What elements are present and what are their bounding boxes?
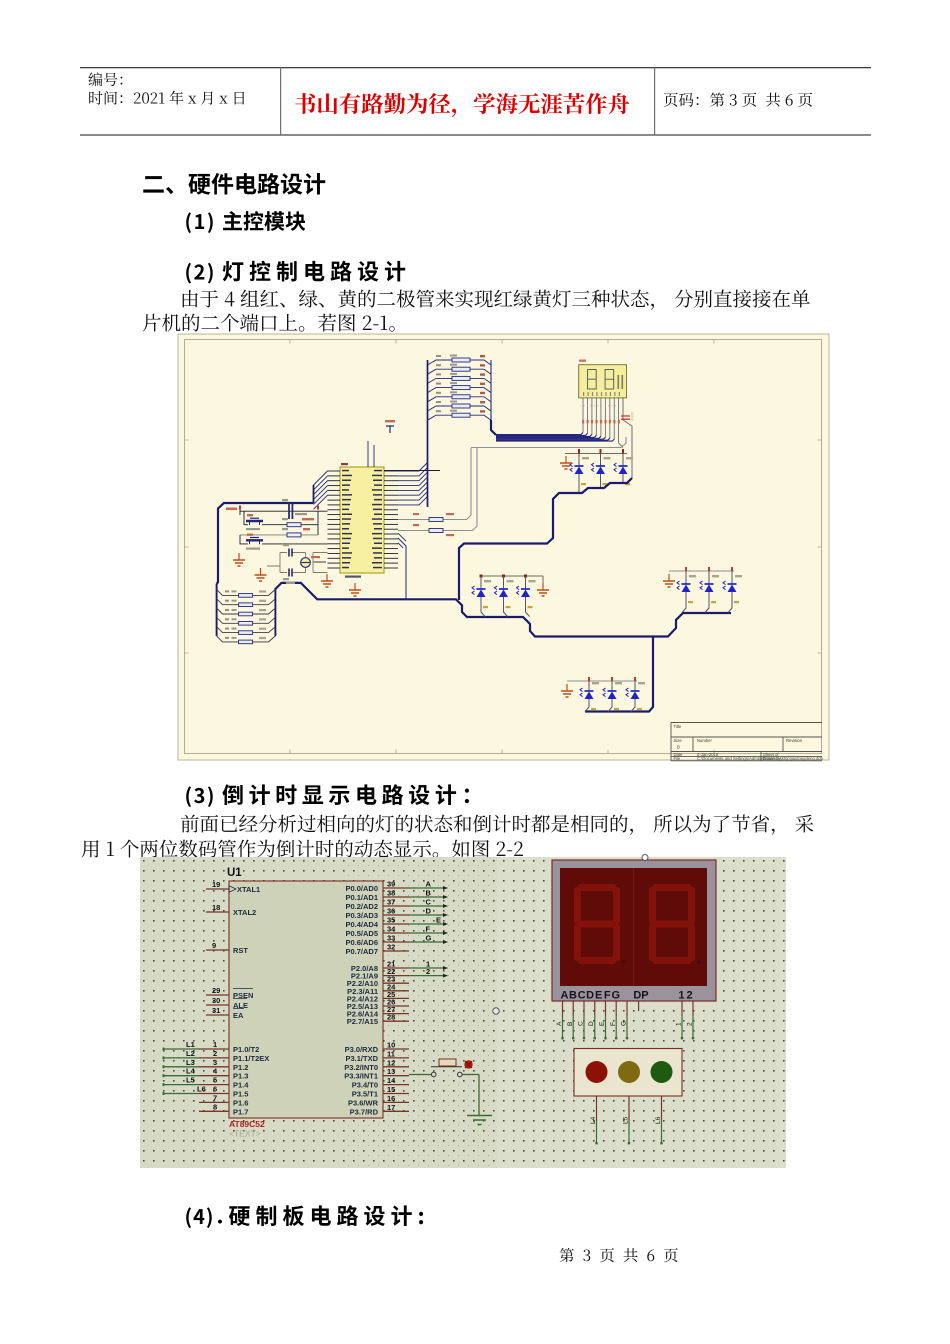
svg-text:B: B [426, 889, 432, 898]
svg-text:L5: L5 [623, 1116, 630, 1124]
svg-text:F: F [426, 925, 431, 934]
svg-text:7: 7 [213, 1093, 217, 1102]
svg-text:32: 32 [387, 943, 395, 952]
svg-text:P3.4/T0: P3.4/T0 [352, 1081, 378, 1090]
svg-text:File: File [674, 756, 681, 761]
svg-text:5: 5 [213, 1076, 217, 1085]
svg-text:F: F [604, 990, 611, 1002]
svg-text:17: 17 [387, 1103, 395, 1112]
svg-text:C: C [426, 898, 432, 907]
svg-text:A: A [556, 1021, 563, 1026]
svg-text:D: D [588, 1021, 595, 1026]
svg-text:G: G [426, 934, 432, 943]
svg-text:Size: Size [674, 738, 683, 743]
svg-text:8: 8 [213, 1102, 217, 1111]
svg-text:P1.6: P1.6 [233, 1098, 248, 1107]
svg-text:P1.7: P1.7 [233, 1107, 248, 1116]
svg-text:13: 13 [387, 1067, 395, 1076]
svg-text:3: 3 [213, 1058, 217, 1067]
svg-text:18: 18 [212, 903, 220, 912]
svg-text:G: G [612, 990, 621, 1002]
svg-text:A: A [426, 880, 432, 889]
svg-text:C: C [578, 990, 586, 1002]
svg-text:P0.4/AD4: P0.4/AD4 [345, 920, 378, 929]
svg-text:Title: Title [674, 724, 682, 729]
svg-text:L1: L1 [186, 1040, 195, 1049]
svg-text:2: 2 [426, 967, 430, 976]
svg-text:6: 6 [213, 1085, 217, 1094]
svg-text:F: F [610, 1022, 617, 1026]
svg-text:28: 28 [387, 1013, 395, 1022]
svg-text:L3: L3 [186, 1058, 195, 1067]
svg-text:P1.0/T2: P1.0/T2 [233, 1045, 259, 1054]
svg-text:36: 36 [387, 907, 395, 916]
svg-text:C:\Documents and Settings\Admi: C:\Documents and Settings\Administrator\… [697, 756, 824, 761]
svg-text:10: 10 [387, 1041, 395, 1050]
svg-text:33: 33 [387, 934, 395, 943]
svg-text:P3.7/RD: P3.7/RD [350, 1107, 379, 1116]
svg-text:31: 31 [212, 1006, 220, 1015]
svg-text:P1.2: P1.2 [233, 1063, 248, 1072]
svg-text:12: 12 [678, 990, 694, 1002]
svg-text:30: 30 [212, 996, 220, 1005]
svg-text:XTAL2: XTAL2 [233, 908, 256, 917]
svg-text:9: 9 [212, 941, 216, 950]
svg-text:P1.3: P1.3 [233, 1072, 248, 1081]
svg-text:P0.3/AD3: P0.3/AD3 [345, 911, 378, 920]
svg-text:P2.7/A15: P2.7/A15 [347, 1017, 378, 1026]
svg-text:34: 34 [387, 925, 396, 934]
svg-text:P0.7/AD7: P0.7/AD7 [345, 947, 378, 956]
svg-text:U1: U1 [227, 867, 242, 879]
svg-text:1: 1 [213, 1040, 217, 1049]
svg-text:D: D [586, 990, 594, 1002]
svg-text:B: B [677, 745, 680, 750]
svg-text:RST: RST [233, 946, 248, 955]
svg-text:35: 35 [387, 916, 395, 925]
svg-text:L6: L6 [655, 1116, 662, 1124]
svg-text:14: 14 [387, 1076, 396, 1085]
svg-text:P0.2/AD2: P0.2/AD2 [345, 902, 378, 911]
svg-text:P1.1/T2EX: P1.1/T2EX [233, 1054, 269, 1063]
svg-text:P0.0/AD0: P0.0/AD0 [345, 884, 378, 893]
svg-text:EA: EA [233, 1011, 244, 1020]
svg-text:P3.6/WR: P3.6/WR [348, 1098, 379, 1107]
svg-text:39: 39 [387, 880, 395, 889]
svg-text:AT89C52: AT89C52 [229, 1119, 265, 1129]
svg-text:L4: L4 [186, 1067, 196, 1076]
svg-text:DP: DP [633, 990, 648, 1002]
svg-text:P1.4: P1.4 [233, 1081, 249, 1090]
svg-text:<TEXT>: <TEXT> [229, 1129, 261, 1139]
svg-text:Drawn by: Drawn by [763, 756, 782, 761]
svg-text:P3.3/INT1: P3.3/INT1 [344, 1072, 378, 1081]
svg-text:P0.6/AD6: P0.6/AD6 [345, 938, 378, 947]
svg-text:L2: L2 [186, 1049, 195, 1058]
svg-text:L6: L6 [197, 1085, 206, 1094]
svg-text:P3.2/INT0: P3.2/INT0 [344, 1063, 378, 1072]
svg-text:11: 11 [387, 1049, 395, 1058]
svg-text:E: E [436, 916, 441, 925]
svg-text:P3.1/TXD: P3.1/TXD [345, 1054, 378, 1063]
svg-text:B: B [569, 990, 577, 1002]
svg-text:38: 38 [387, 889, 395, 898]
svg-text:D: D [426, 907, 432, 916]
svg-text:G: G [621, 1021, 628, 1026]
svg-text:37: 37 [387, 898, 395, 907]
svg-text:A: A [561, 990, 569, 1002]
svg-text:P3.0/RXD: P3.0/RXD [345, 1045, 379, 1054]
svg-text:2: 2 [687, 1022, 694, 1026]
svg-text:P1.5: P1.5 [233, 1090, 248, 1099]
svg-text:19: 19 [212, 880, 220, 889]
svg-text:2: 2 [213, 1049, 217, 1058]
svg-text:XTAL1: XTAL1 [237, 885, 260, 894]
svg-text:12: 12 [387, 1058, 395, 1067]
svg-text:P0.5/AD5: P0.5/AD5 [345, 929, 378, 938]
svg-text:15: 15 [387, 1085, 395, 1094]
svg-text:Revision: Revision [786, 738, 803, 743]
svg-text:16: 16 [387, 1094, 395, 1103]
svg-text:L4: L4 [590, 1116, 597, 1124]
svg-text:P3.5/T1: P3.5/T1 [352, 1090, 378, 1099]
svg-text:E: E [595, 990, 602, 1002]
svg-text:E: E [599, 1021, 606, 1026]
svg-text:29: 29 [212, 986, 220, 995]
svg-text:Number: Number [697, 738, 712, 743]
svg-text:B: B [567, 1022, 574, 1026]
svg-text:C: C [578, 1021, 585, 1026]
svg-text:P0.1/AD1: P0.1/AD1 [345, 893, 378, 902]
svg-text:L5: L5 [186, 1076, 195, 1085]
svg-text:1: 1 [676, 1022, 683, 1026]
